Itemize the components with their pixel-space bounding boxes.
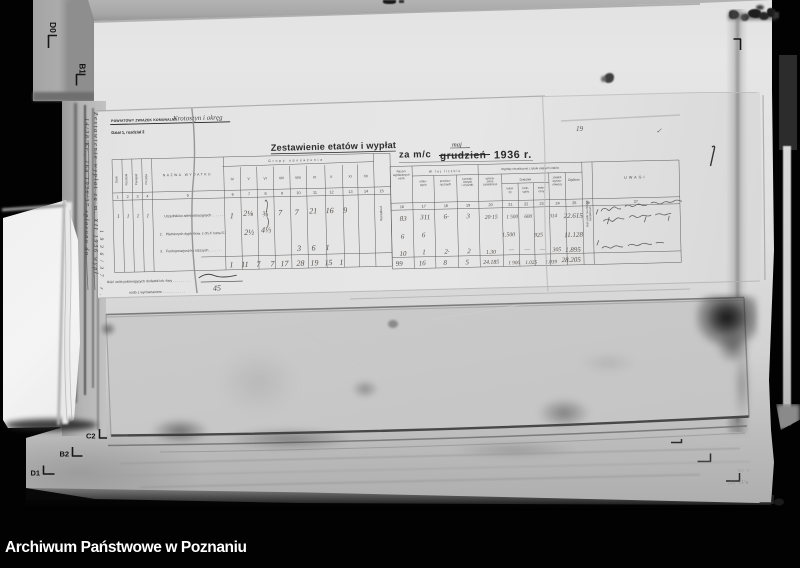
svg-text:B2: B2 bbox=[60, 450, 70, 459]
svg-text:C2: C2 bbox=[86, 432, 96, 441]
svg-text:,31′ 11′я: ,31′ 11′я bbox=[728, 480, 748, 486]
svg-text:во ·г: во ·г bbox=[738, 468, 750, 474]
svg-text:D0: D0 bbox=[48, 22, 58, 33]
svg-text:D1: D1 bbox=[31, 469, 41, 478]
svg-text:B1: B1 bbox=[78, 64, 87, 75]
